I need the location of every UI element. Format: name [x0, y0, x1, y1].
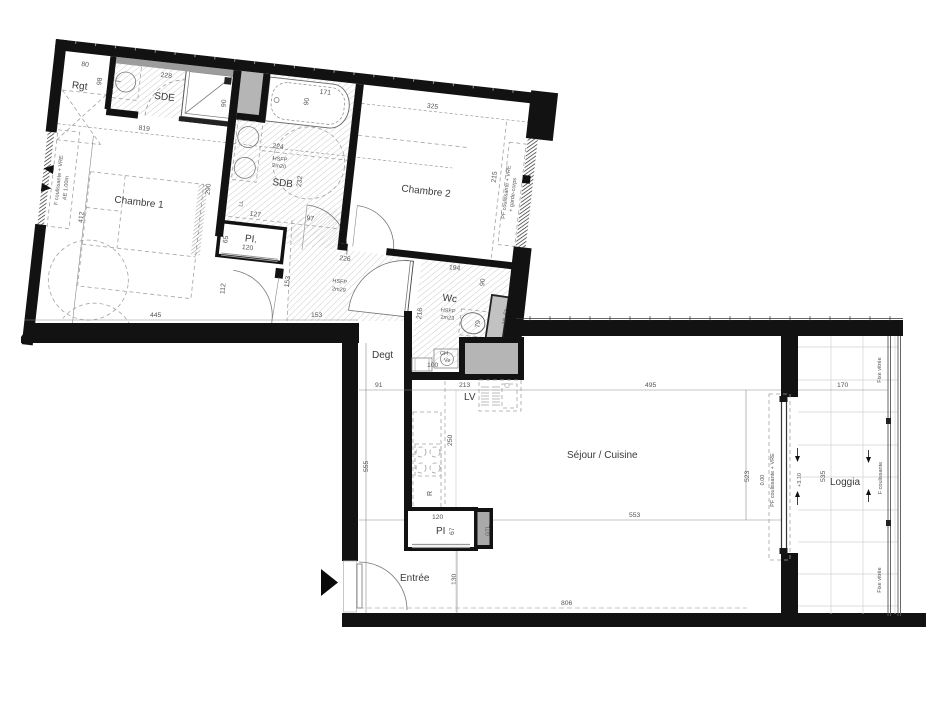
svg-text:153: 153	[284, 275, 292, 287]
svg-text:290: 290	[205, 183, 213, 195]
svg-text:232: 232	[296, 175, 304, 187]
svg-text:819: 819	[138, 125, 150, 133]
svg-text:127: 127	[249, 211, 261, 219]
svg-text:97: 97	[306, 215, 315, 223]
svg-text:445: 445	[150, 312, 162, 319]
svg-text:0.00: 0.00	[760, 475, 766, 486]
svg-text:215: 215	[491, 171, 499, 183]
svg-text:495: 495	[645, 382, 657, 389]
svg-text:Fixe vitrée: Fixe vitrée	[877, 357, 883, 382]
svg-text:806: 806	[561, 600, 573, 607]
svg-text:GTL: GTL	[486, 525, 492, 536]
svg-text:228: 228	[160, 72, 172, 80]
svg-text:PI: PI	[436, 526, 445, 537]
svg-text:194: 194	[449, 264, 461, 272]
svg-text:226: 226	[339, 255, 351, 263]
svg-text:LL: LL	[238, 200, 245, 207]
svg-text:213: 213	[459, 382, 471, 389]
svg-text:Wc: Wc	[442, 293, 458, 306]
svg-text:130: 130	[451, 573, 458, 585]
svg-text:120: 120	[432, 514, 444, 521]
svg-text:R: R	[427, 491, 434, 496]
svg-text:91: 91	[375, 382, 383, 389]
svg-text:535: 535	[820, 470, 827, 482]
svg-text:90: 90	[220, 99, 228, 108]
svg-text:Degt: Degt	[372, 350, 393, 361]
svg-text:Séjour / Cuisine: Séjour / Cuisine	[567, 450, 638, 461]
svg-text:67: 67	[449, 527, 456, 535]
svg-text:555: 555	[363, 460, 370, 472]
svg-text:SDB: SDB	[272, 177, 294, 190]
svg-text:Ve: Ve	[444, 358, 450, 364]
svg-text:171: 171	[319, 89, 331, 97]
svg-text:Loggia: Loggia	[830, 477, 860, 488]
svg-text:250: 250	[447, 434, 454, 446]
svg-text:65: 65	[222, 235, 230, 244]
svg-text:F coulissante: F coulissante	[878, 462, 884, 494]
svg-text:79: 79	[474, 320, 482, 329]
svg-text:98: 98	[96, 77, 104, 86]
svg-text:Entrée: Entrée	[400, 573, 430, 584]
svg-text:90: 90	[303, 97, 311, 106]
svg-text:153: 153	[311, 312, 323, 319]
svg-text:100: 100	[427, 362, 439, 369]
svg-text:+3.10: +3.10	[797, 473, 803, 487]
svg-text:90: 90	[479, 278, 487, 287]
svg-text:412: 412	[78, 211, 86, 223]
svg-text:Fixe vitrée: Fixe vitrée	[877, 567, 883, 592]
svg-text:216: 216	[416, 307, 424, 319]
svg-text:CH: CH	[440, 351, 448, 357]
svg-text:112: 112	[219, 283, 227, 295]
svg-text:80: 80	[81, 61, 90, 69]
svg-text:170: 170	[837, 382, 849, 389]
svg-text:LV: LV	[464, 392, 476, 403]
svg-text:SDE: SDE	[154, 91, 176, 104]
svg-text:523: 523	[744, 470, 751, 482]
svg-text:120: 120	[242, 244, 254, 252]
svg-text:Rgt: Rgt	[71, 80, 88, 93]
svg-text:224: 224	[272, 143, 284, 151]
svg-text:325: 325	[426, 103, 438, 111]
svg-text:PF coulissante + VRE: PF coulissante + VRE	[770, 453, 776, 507]
svg-text:553: 553	[629, 512, 641, 519]
